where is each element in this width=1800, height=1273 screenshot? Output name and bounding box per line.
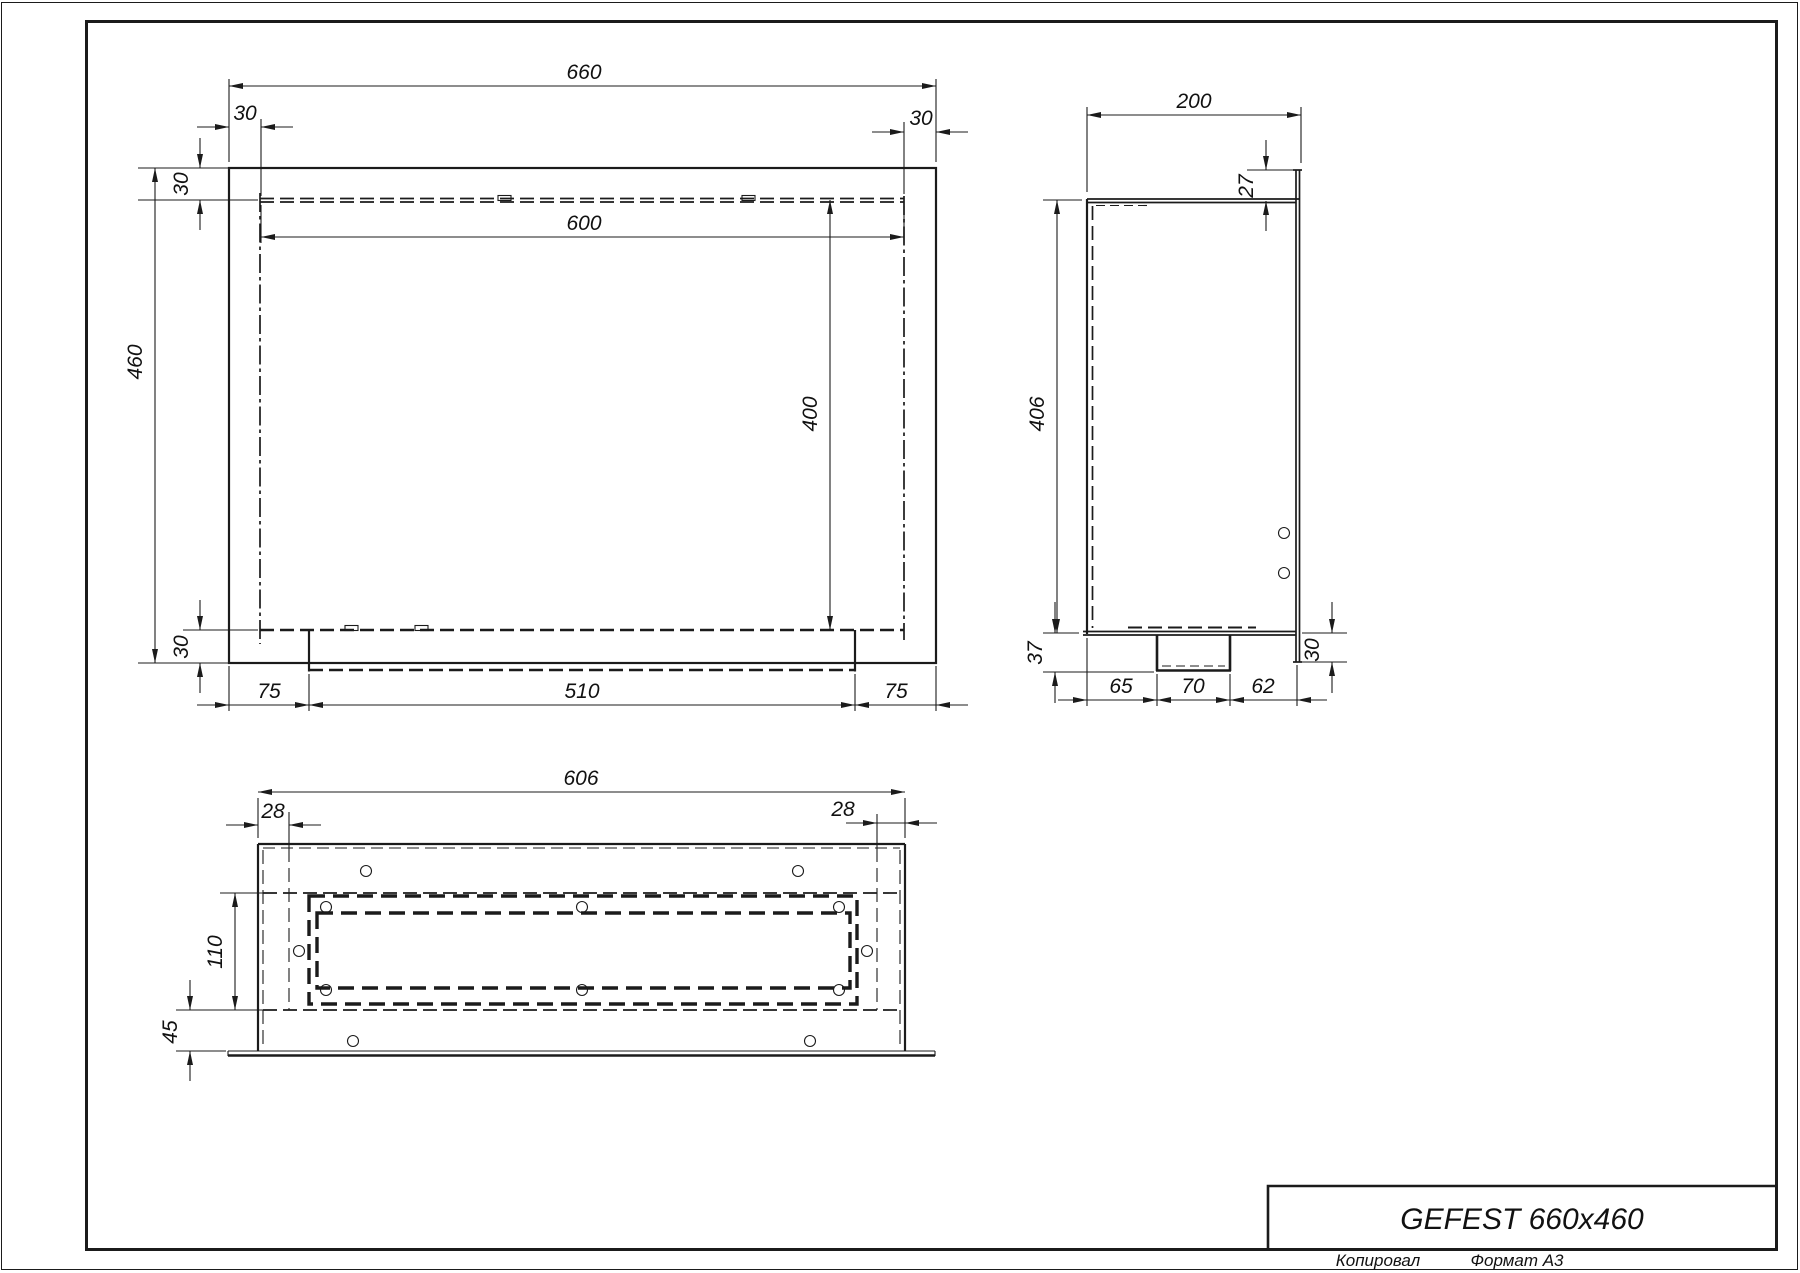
dim-label-45: 45 [159, 1020, 182, 1044]
side-front-flange [1293, 170, 1302, 662]
dim-label-30-tl: 30 [233, 102, 257, 125]
dim-front-inset-right: 30 [872, 107, 968, 194]
dim-label-75-left: 75 [257, 680, 281, 703]
front-view: 660 30 30 600 30 [124, 61, 968, 711]
sheet-frame: GEFEST 660x460 Копировал Формат А3 [2, 3, 1798, 1271]
dim-bottom-body-width: 606 [258, 767, 905, 838]
bottom-flange [228, 1051, 935, 1056]
dim-label-28-left: 28 [260, 800, 285, 823]
dim-label-600: 600 [566, 212, 601, 235]
title-block-title: GEFEST 660x460 [1400, 1203, 1644, 1236]
dim-front-total-width: 660 [229, 61, 936, 162]
bottom-trough-inner [317, 913, 850, 988]
dim-label-75-right: 75 [884, 680, 908, 703]
dim-bottom-flange-height: 45 [159, 980, 226, 1081]
dim-bottom-inset-right: 28 [830, 798, 937, 823]
dim-front-total-height: 460 [124, 168, 229, 663]
dim-label-30-side: 30 [1301, 638, 1324, 662]
dim-bottom-inset-left: 28 [226, 800, 321, 825]
side-view: 200 27 406 37 [1024, 90, 1347, 706]
side-hole-upper [1279, 528, 1290, 539]
dim-front-inset-top: 30 [138, 138, 258, 230]
dim-label-37: 37 [1024, 640, 1047, 665]
footer-format-label: Формат А3 [1470, 1251, 1564, 1270]
dim-label-27: 27 [1235, 173, 1258, 199]
dim-front-inner-width: 600 [261, 205, 904, 243]
dim-label-70: 70 [1181, 675, 1205, 698]
dim-side-flange-bottom: 30 [1301, 602, 1347, 693]
side-burner-protrusion [1156, 635, 1231, 671]
dim-side-depth: 200 [1087, 90, 1301, 192]
dim-front-inset-left: 30 [197, 102, 293, 196]
dim-label-510: 510 [564, 680, 599, 703]
dim-label-200: 200 [1175, 90, 1211, 113]
dim-label-62: 62 [1251, 675, 1275, 698]
drawing-sheet: GEFEST 660x460 Копировал Формат А3 660 [0, 0, 1800, 1273]
dim-label-660: 660 [566, 61, 601, 84]
drawing-canvas: GEFEST 660x460 Копировал Формат А3 660 [0, 0, 1800, 1273]
dim-side-flange-top: 27 [1235, 140, 1293, 231]
dim-label-30-top: 30 [170, 172, 193, 196]
bottom-view: 606 28 28 110 45 [159, 767, 937, 1081]
dim-label-65: 65 [1109, 675, 1133, 698]
footer-copied-label: Копировал [1336, 1251, 1421, 1270]
dim-label-400: 400 [799, 396, 822, 431]
dim-label-28-right: 28 [830, 798, 855, 821]
dim-label-110: 110 [204, 935, 227, 969]
dim-label-460: 460 [124, 344, 147, 379]
dim-front-bottom-chain: 75 510 75 [197, 666, 968, 711]
dim-label-30-bl: 30 [170, 635, 193, 659]
dim-side-burner-drop: 37 [1024, 602, 1154, 703]
dim-side-body-height: 406 [1026, 200, 1082, 633]
dim-bottom-slot-height: 110 [176, 893, 264, 1010]
dim-front-inner-height: 400 [799, 200, 830, 630]
side-hole-lower [1279, 568, 1290, 579]
dim-front-inset-bottom: 30 [170, 600, 258, 693]
front-burner-tray [309, 630, 855, 672]
dim-label-606: 606 [563, 767, 598, 790]
dim-label-406: 406 [1026, 396, 1049, 431]
dim-label-30-tr: 30 [909, 107, 933, 130]
